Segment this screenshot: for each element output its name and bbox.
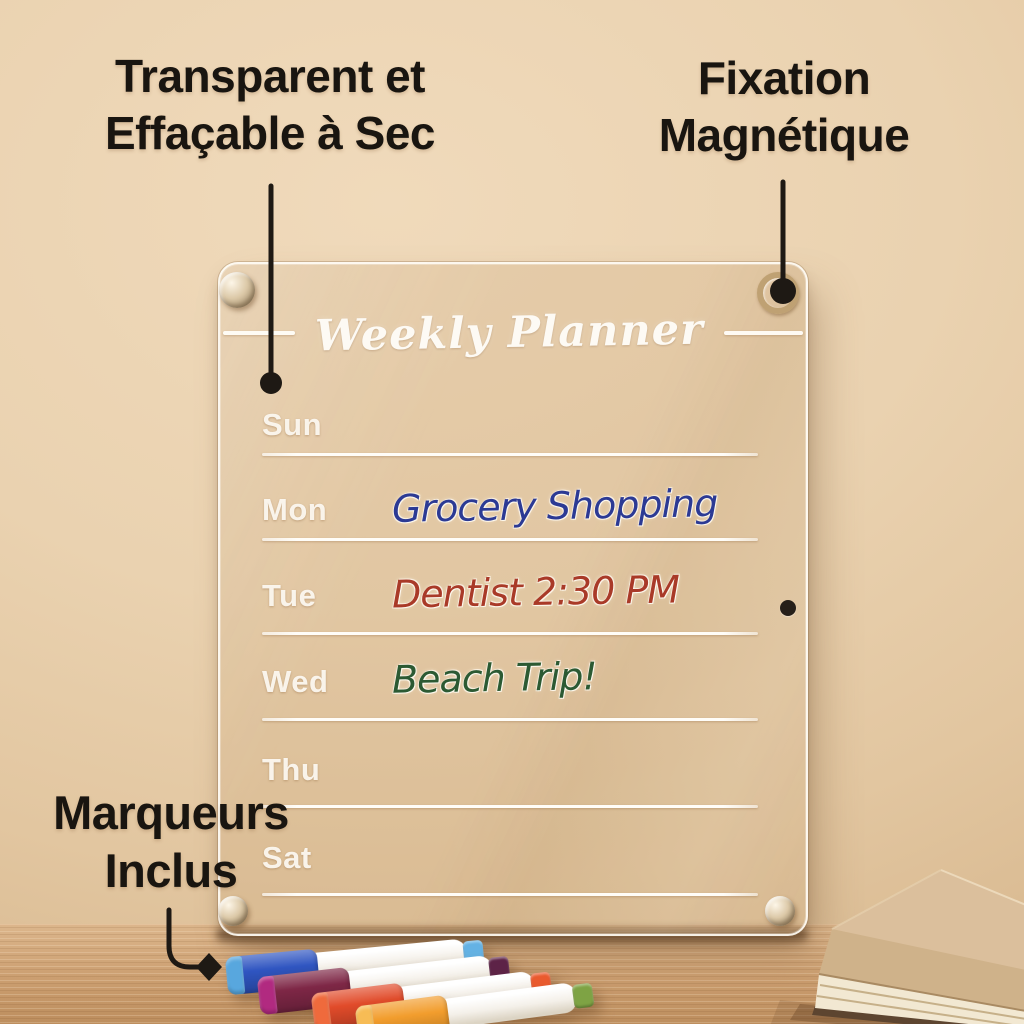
board-title-text: Weekly Planner [315, 305, 704, 362]
day-label-thu: Thu [262, 752, 320, 788]
callout-line2: Effaçable à Sec [30, 105, 510, 162]
callout-transparent: Transparent et Effaçable à Sec [30, 48, 510, 162]
day-label-sun: Sun [262, 407, 322, 443]
row-line [262, 805, 758, 808]
callout-markers-included: Marqueurs Inclus [15, 784, 327, 900]
callout-line1: Fixation [598, 50, 970, 107]
row-line [262, 453, 758, 456]
magnet-screw-bottom-left [218, 896, 248, 926]
row-line [262, 893, 758, 896]
callout-line1: Transparent et [30, 48, 510, 105]
entry-tue: Dentist 2:30 PM [392, 567, 680, 616]
board-title: Weekly Planner [220, 308, 806, 358]
entry-wed: Beach Trip! [392, 654, 597, 702]
entry-mon: Grocery Shopping [392, 481, 718, 531]
magnet-screw-bottom-right [765, 896, 795, 926]
day-label-wed: Wed [262, 664, 328, 700]
callout-line2: Magnétique [598, 107, 970, 164]
row-line [262, 632, 758, 635]
row-line [262, 718, 758, 721]
title-dash-left [223, 331, 295, 335]
callout-line2: Inclus [15, 842, 327, 900]
magnet-screw-top-left [219, 272, 255, 308]
product-photo-scene: Weekly Planner Sun Mon Grocery Shopping … [0, 0, 1024, 1024]
day-label-tue: Tue [262, 578, 316, 614]
row-line [262, 538, 758, 541]
callout-magnetic: Fixation Magnétique [598, 50, 970, 164]
magnet-ring-top-right [757, 272, 799, 314]
magnet-dot [780, 600, 796, 616]
title-dash-right [724, 331, 803, 335]
callout-line1: Marqueurs [15, 784, 327, 842]
day-label-mon: Mon [262, 492, 327, 528]
